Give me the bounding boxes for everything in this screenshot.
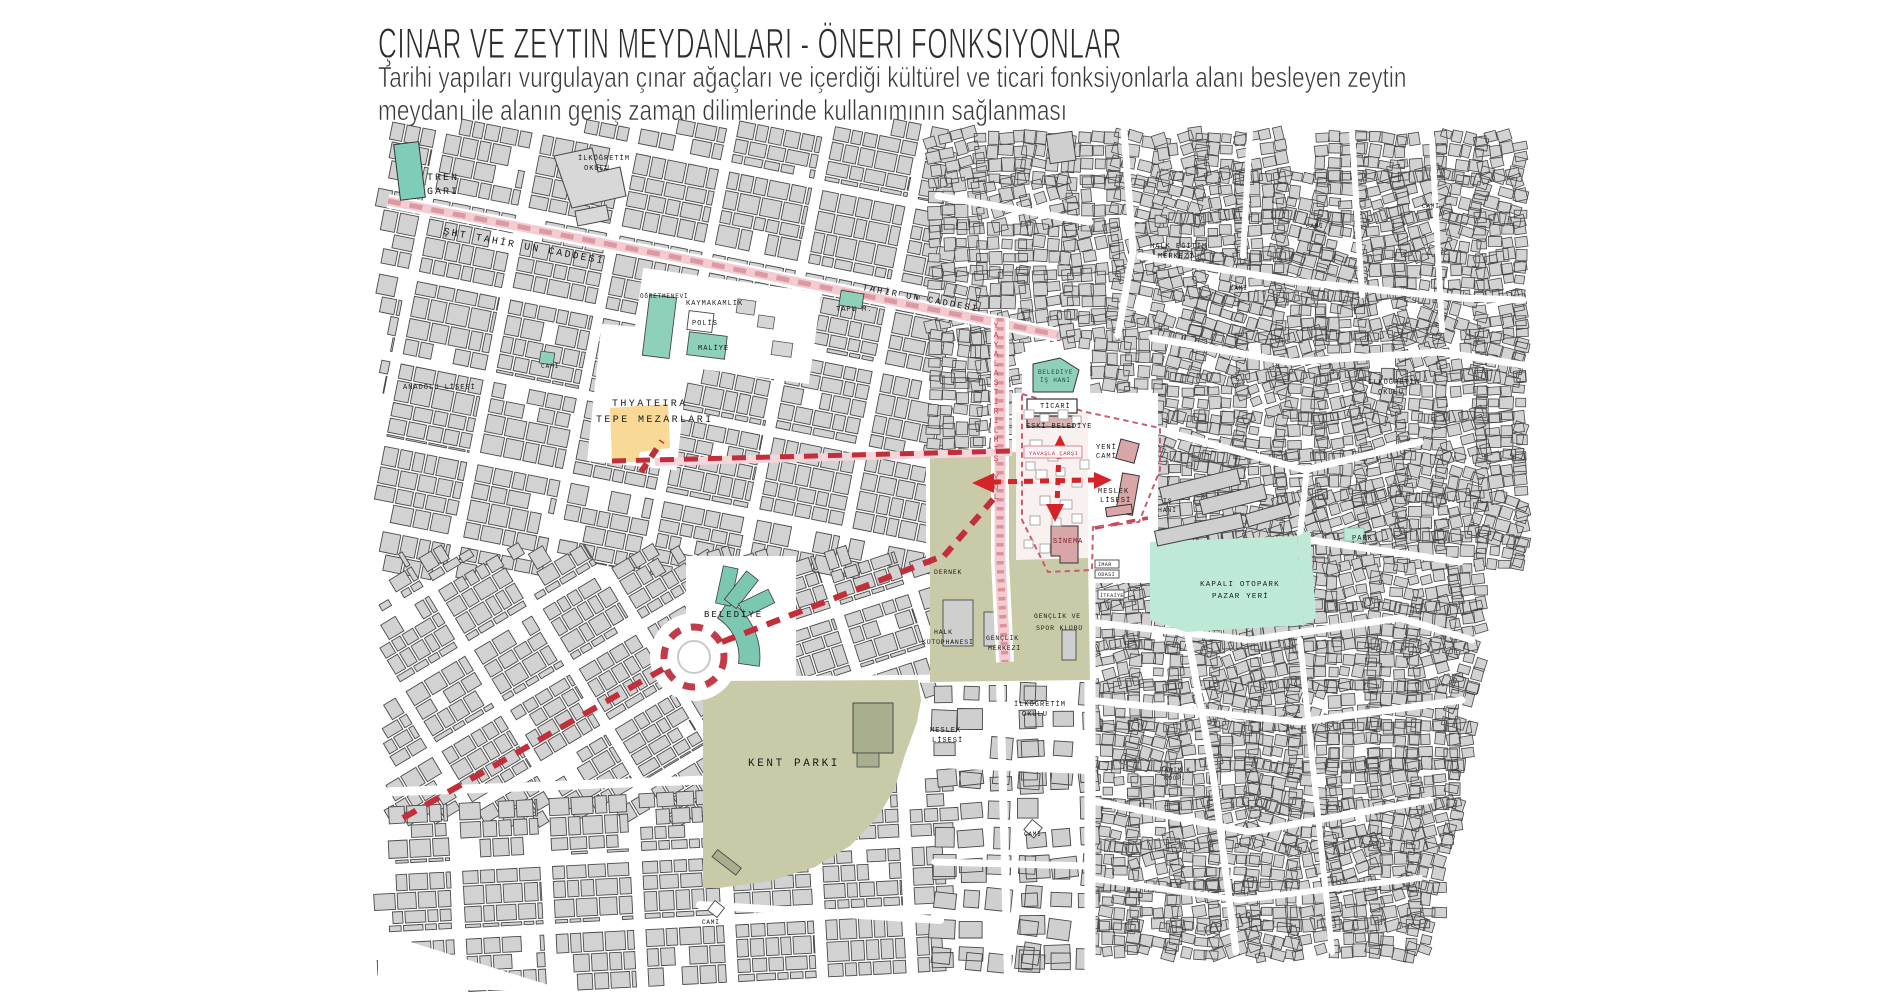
- svg-text:OKULU: OKULU: [584, 165, 610, 173]
- svg-text:BELEDİYE: BELEDİYE: [704, 609, 763, 620]
- svg-text:İTFAİYE: İTFAİYE: [1100, 592, 1124, 599]
- svg-text:LİSESİ: LİSESİ: [932, 736, 963, 745]
- svg-text:KÜTÜPHANESİ: KÜTÜPHANESİ: [922, 638, 974, 646]
- svg-text:TEPE MEZARLARI: TEPE MEZARLARI: [596, 415, 714, 426]
- svg-text:HALK: HALK: [934, 629, 953, 636]
- svg-text:İMAR: İMAR: [1098, 561, 1112, 568]
- svg-text:SPOR KLÜBÜ: SPOR KLÜBÜ: [1036, 624, 1083, 632]
- svg-text:CAMİ: CAMİ: [1306, 223, 1324, 230]
- svg-text:MERKEZİ: MERKEZİ: [988, 644, 1021, 652]
- svg-text:DERNEK: DERNEK: [934, 569, 962, 576]
- svg-text:CAMİ: CAMİ: [702, 919, 720, 926]
- svg-text:SİNEMA: SİNEMA: [1053, 537, 1083, 546]
- svg-text:PARK: PARK: [1352, 535, 1373, 543]
- svg-text:CAMİ: CAMİ: [1096, 452, 1117, 461]
- svg-text:LİSESİ: LİSESİ: [1100, 496, 1131, 505]
- svg-text:MESLEK: MESLEK: [930, 727, 961, 735]
- svg-text:OKULU: OKULU: [1022, 711, 1048, 719]
- svg-text:GENÇLİK VE: GENÇLİK VE: [1034, 612, 1081, 620]
- svg-text:YAVAŞLA ÇARŞI: YAVAŞLA ÇARŞI: [1029, 450, 1078, 457]
- svg-text:KOOP.: KOOP.: [1164, 775, 1186, 782]
- svg-text:ÖĞRETMENEVİ: ÖĞRETMENEVİ: [640, 293, 688, 300]
- svg-text:THYATEIRA: THYATEIRA: [612, 399, 688, 410]
- svg-text:İŞ: İŞ: [1163, 497, 1172, 505]
- svg-text:İLKÖĞRETİM: İLKÖĞRETİM: [1368, 377, 1420, 387]
- svg-text:İLKÖĞRETİM: İLKÖĞRETİM: [578, 153, 630, 163]
- svg-text:GARI: GARI: [427, 187, 459, 198]
- svg-text:HANİ: HANİ: [1158, 506, 1177, 514]
- svg-text:YAYALAŞTIRILMIŞ YOL: YAYALAŞTIRILMIŞ YOL: [992, 322, 1001, 503]
- svg-text:İLKÖĞRETİM: İLKÖĞRETİM: [1014, 699, 1066, 709]
- svg-text:İŞ HANI: İŞ HANI: [1040, 377, 1071, 384]
- svg-text:KAPALI OTOPARK: KAPALI OTOPARK: [1200, 581, 1280, 589]
- svg-text:YENİ: YENİ: [1096, 443, 1117, 452]
- svg-text:OKULU: OKULU: [1378, 389, 1404, 397]
- svg-text:TAPU M.: TAPU M.: [836, 306, 872, 314]
- svg-text:POLİS: POLİS: [692, 319, 718, 328]
- svg-text:ODASI: ODASI: [1098, 572, 1115, 578]
- svg-text:CAMİ: CAMİ: [1024, 831, 1042, 838]
- svg-text:KENT PARKI: KENT PARKI: [748, 758, 840, 770]
- svg-text:PAZAR YERİ: PAZAR YERİ: [1212, 592, 1269, 601]
- svg-text:HALK EĞİTİM: HALK EĞİTİM: [1150, 241, 1207, 251]
- svg-text:ESKİ BELEDİYE: ESKİ BELEDİYE: [1026, 422, 1092, 431]
- svg-text:TİCARİ: TİCARİ: [1040, 402, 1071, 411]
- svg-text:CAMİ: CAMİ: [541, 363, 559, 370]
- svg-text:ANADOLU LİSESİ: ANADOLU LİSESİ: [403, 383, 476, 392]
- svg-text:MERKEZİ: MERKEZİ: [1158, 252, 1194, 261]
- svg-text:TARIM K.: TARIM K.: [1160, 767, 1195, 774]
- svg-text:GENÇLİK: GENÇLİK: [986, 634, 1019, 642]
- svg-text:KAYMAKAMLIK: KAYMAKAMLIK: [686, 300, 743, 308]
- svg-text:CAMİ: CAMİ: [1422, 203, 1440, 210]
- svg-text:TREN: TREN: [427, 173, 459, 184]
- svg-text:CAMİ: CAMİ: [1230, 285, 1248, 292]
- svg-text:MALİYE: MALİYE: [698, 344, 729, 353]
- svg-text:MESLEK: MESLEK: [1098, 488, 1129, 496]
- svg-text:BELEDİYE: BELEDİYE: [1038, 369, 1073, 376]
